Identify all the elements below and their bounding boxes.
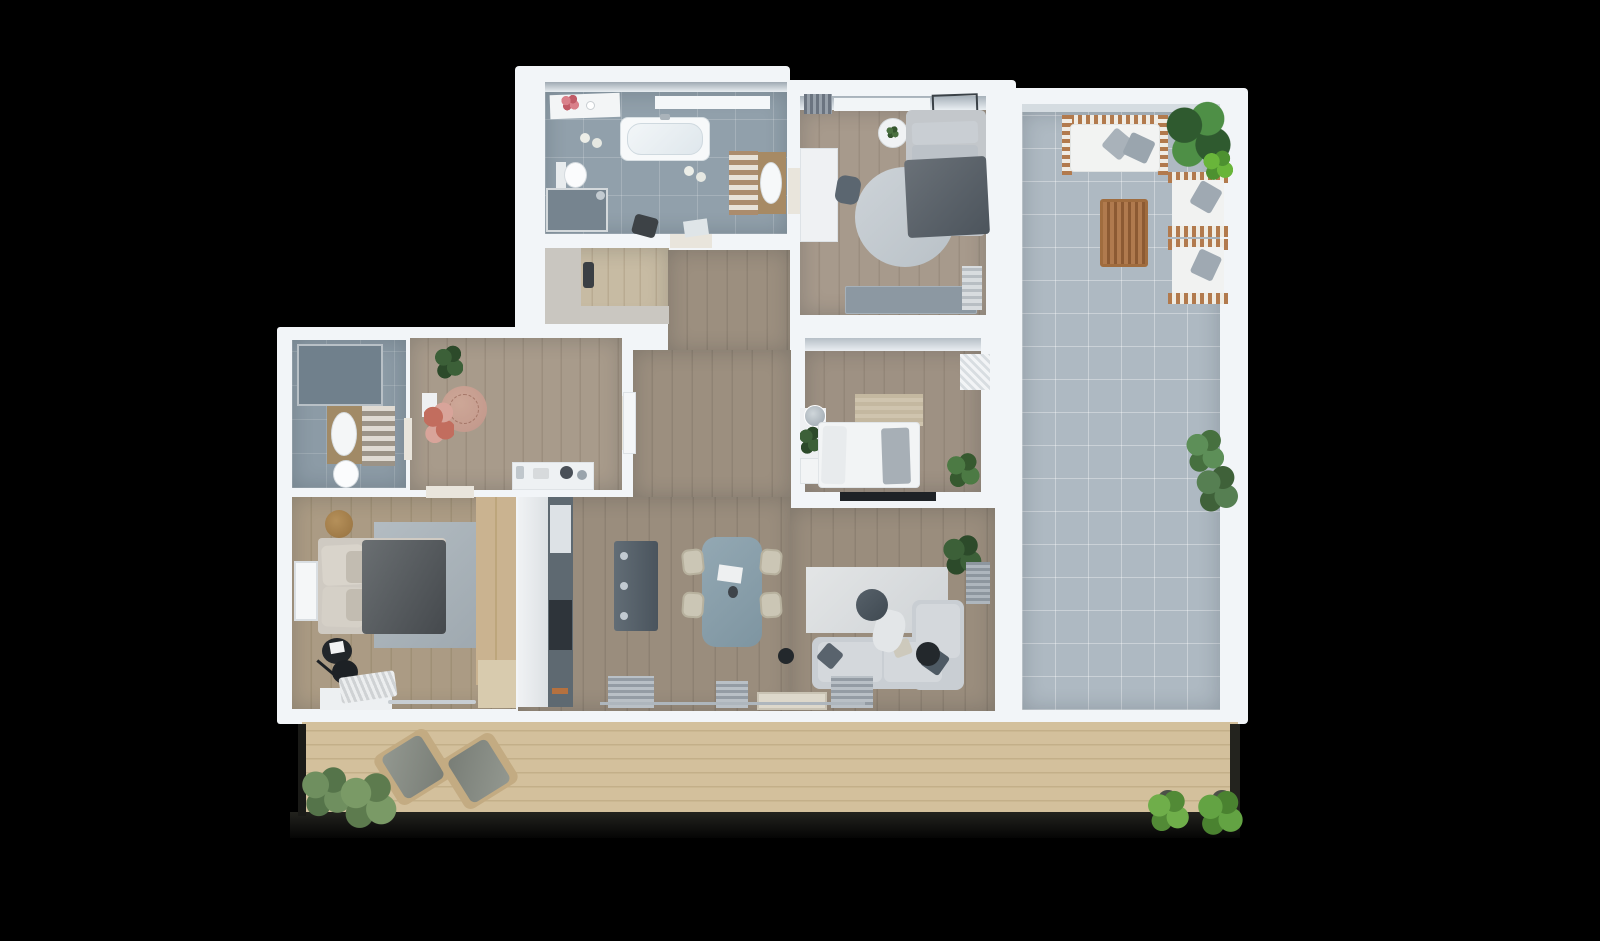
- kitchen-fridge: [550, 505, 571, 553]
- bathtub-basin: [627, 123, 703, 155]
- storage-cabinet-bottom: [580, 306, 669, 324]
- counter-kettle: [560, 466, 573, 479]
- dining-decor-vase: [728, 586, 738, 598]
- door-sill-master-bedroom: [426, 486, 474, 498]
- dining-chair-1: [681, 548, 706, 576]
- stool-bathroom-3: [684, 166, 694, 176]
- terrace-plant-small: [1202, 150, 1234, 182]
- plant-bedroom-middle-corner: [946, 452, 980, 490]
- floor-plan-canvas: [0, 0, 1600, 941]
- dresser-bedroom-top-right: [845, 286, 977, 314]
- window-bevel-main-bathroom: [545, 82, 787, 92]
- floor-hall-lower: [633, 350, 791, 498]
- master-wardrobe: [476, 497, 516, 685]
- toilet-bowl-main-bathroom: [564, 162, 587, 188]
- storage-cabinet-left: [545, 248, 581, 324]
- plant-entry-wall: [435, 344, 463, 382]
- blanket-master: [362, 540, 446, 634]
- door-sill-left-bathroom: [404, 418, 412, 460]
- door-leaf-entry-hall: [623, 392, 636, 454]
- dining-chair-2: [681, 591, 705, 618]
- master-wardrobe-lower: [478, 660, 516, 708]
- door-sill-bedroom-top-right: [788, 168, 800, 214]
- terrace-chair2-front: [1168, 293, 1228, 304]
- storage-vacuum: [583, 262, 594, 288]
- cup-bathroom-shelf: [586, 101, 595, 110]
- nightstand-bedroom-middle: [800, 458, 820, 484]
- window-sill-main-bathroom: [655, 96, 770, 109]
- deck-plant-right-2: [1196, 790, 1244, 838]
- island-knob-1: [620, 552, 628, 560]
- plant-bedroom-middle-left: [800, 425, 820, 457]
- kitchen-oven: [549, 600, 572, 650]
- shower-head-main-bathroom: [596, 191, 605, 200]
- blanket-bedroom-top-right: [904, 156, 990, 238]
- rug-striped-left-bathroom: [362, 406, 395, 466]
- deck-plant-2: [338, 772, 398, 832]
- sink-left-bathroom: [331, 412, 357, 456]
- desk-bedroom-top-right: [800, 148, 838, 242]
- dining-decor-tray: [717, 564, 743, 583]
- rug-striped-main-bathroom: [729, 151, 758, 215]
- curtain-bedroom-middle: [960, 354, 990, 390]
- rail-master: [388, 700, 476, 704]
- deck-edge-bottom: [290, 812, 1240, 838]
- radiator-pipe: [600, 702, 865, 705]
- pillow-bedroom-middle: [821, 426, 847, 485]
- terrace-chair1-front: [1168, 226, 1228, 237]
- dining-chair-3: [759, 548, 783, 576]
- sink-main-bathroom: [760, 162, 782, 204]
- terrace-plant-mid-2: [1196, 464, 1238, 516]
- flowers-pink: [560, 95, 580, 111]
- coffee-table-living: [856, 589, 888, 621]
- shower-left-bathroom: [297, 344, 383, 406]
- arc-lamp-arm: [786, 636, 926, 662]
- blinds-bedroom-top-right: [804, 94, 832, 114]
- pillow-1-bedroom-top-right: [912, 121, 979, 145]
- dining-chair-4: [759, 591, 783, 618]
- side-table-wood-master: [325, 510, 353, 538]
- toilet-bowl-left-bathroom: [333, 460, 359, 488]
- counter-tray: [533, 468, 549, 479]
- doormat-living: [757, 692, 827, 710]
- stool-bathroom-1: [580, 133, 590, 143]
- arc-lamp-head: [916, 642, 940, 666]
- floor-hall-upper: [668, 250, 790, 352]
- stool-bathroom-2: [592, 138, 602, 148]
- island-knob-3: [620, 612, 628, 620]
- blanket-bedroom-middle: [881, 428, 911, 485]
- picture-frame-master: [294, 561, 318, 621]
- mat-main-bathroom: [683, 218, 709, 237]
- doormat-bedroom-middle: [840, 492, 936, 501]
- island-knob-2: [620, 582, 628, 590]
- books-bedroom-top-right: [962, 266, 982, 310]
- counter-soap: [516, 466, 524, 479]
- kitchen-handle: [552, 688, 568, 694]
- kitchen-cabinet-white-run: [518, 497, 548, 707]
- counter-bowl: [577, 470, 587, 480]
- plant-side-table: [886, 126, 899, 139]
- clothes-entry: [424, 400, 454, 448]
- stool-bathroom-4: [696, 172, 706, 182]
- deck-plant-right-1: [1146, 790, 1190, 834]
- terrace-coffee-table: [1100, 199, 1148, 267]
- bathtub-faucet: [660, 114, 670, 120]
- window-bevel-bedroom-middle: [805, 338, 981, 351]
- radiator-living-right: [966, 562, 990, 604]
